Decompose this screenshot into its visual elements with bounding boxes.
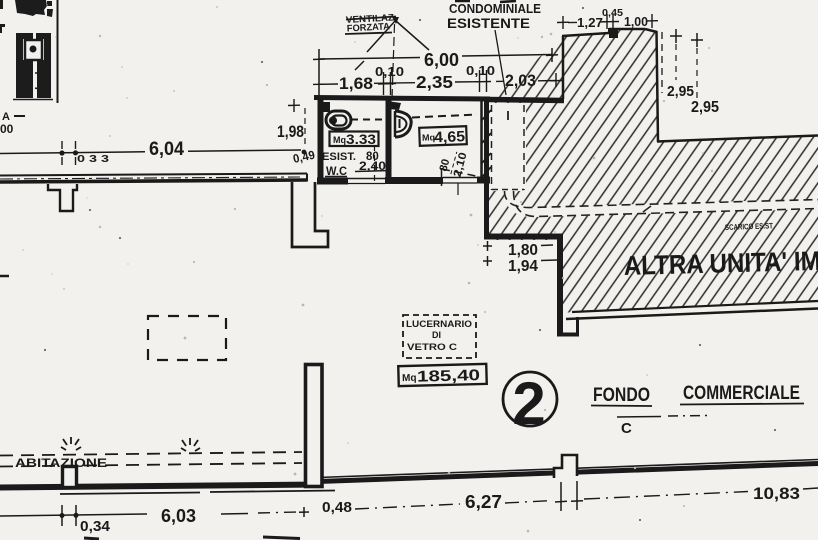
svg-text:4,65: 4,65 [434,128,466,146]
svg-text:0,10: 0,10 [466,64,495,78]
svg-text:6,04: 6,04 [149,139,184,160]
svg-text:Mq: Mq [333,135,346,145]
svg-text:185,40: 185,40 [417,367,480,386]
svg-text:2,95: 2,95 [691,99,719,116]
svg-text:0,48: 0,48 [322,499,352,516]
svg-text:C: C [621,420,632,437]
svg-text:CONDOMINIALE: CONDOMINIALE [449,1,541,16]
svg-text:00: 00 [0,122,14,136]
svg-text:10,83: 10,83 [753,485,800,503]
svg-text:0,10: 0,10 [375,65,404,79]
svg-text:1,98: 1,98 [277,123,304,141]
svg-text:2,03: 2,03 [505,72,536,90]
svg-text:SCARICO ES.ST: SCARICO ES.ST [725,221,773,232]
svg-text:2: 2 [512,370,545,437]
svg-text:6,03: 6,03 [161,505,196,526]
svg-text:ALTRA UNITA' IM: ALTRA UNITA' IM [623,246,818,281]
svg-text:DI: DI [432,330,441,340]
svg-text:3.33: 3.33 [346,132,377,147]
svg-text:FONDO: FONDO [593,385,650,406]
svg-text:ESIST.: ESIST. [322,151,356,163]
svg-text:1,00: 1,00 [624,15,648,29]
svg-text:VETRO C: VETRO C [407,342,458,352]
svg-text:1,68: 1,68 [339,74,373,93]
svg-text:LUCERNARIO: LUCERNARIO [406,319,472,329]
svg-text:COMMERCIALE: COMMERCIALE [683,383,800,404]
svg-text:ESISTENTE: ESISTENTE [447,15,530,31]
svg-text:6,00: 6,00 [424,50,459,70]
svg-text:2,35: 2,35 [416,72,453,92]
svg-text:6,27: 6,27 [465,492,502,512]
svg-text:2,95: 2,95 [667,83,694,100]
svg-text:0,34: 0,34 [80,519,110,535]
svg-text:1,94: 1,94 [508,258,538,275]
svg-text:1,80: 1,80 [508,242,538,259]
svg-text:1,27: 1,27 [577,16,603,30]
svg-text:Mq: Mq [402,373,417,384]
svg-text:0 3 3: 0 3 3 [77,154,110,165]
